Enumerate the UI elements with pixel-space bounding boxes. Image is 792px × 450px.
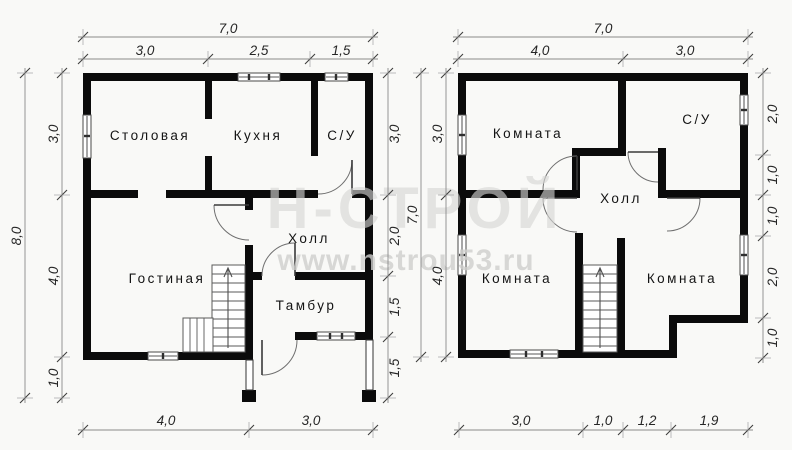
- window: [238, 73, 280, 81]
- dim-floor2-right-3: 1,0: [765, 206, 780, 225]
- room-label-living: Гостиная: [129, 271, 206, 286]
- room-label-hall-2: Холл: [600, 191, 642, 206]
- dim-floor1-left-1: 3,0: [46, 124, 61, 143]
- room-label-hall-1: Холл: [288, 231, 330, 246]
- window: [740, 95, 748, 125]
- dim-floor1-right-3: 1,5: [387, 297, 402, 316]
- room-label-room-top: Комната: [493, 126, 563, 141]
- dim-floor1-left-3: 1,0: [46, 368, 61, 387]
- window: [740, 235, 748, 275]
- window: [325, 73, 348, 81]
- room-label-dining: Столовая: [110, 128, 190, 143]
- window: [317, 332, 355, 340]
- watermark: Н-СТРОЙ www.nstrou53.ru: [267, 176, 564, 277]
- dim-floor2-right-2: 1,0: [765, 165, 780, 184]
- dim-floor2-bottom-2: 1,0: [594, 413, 613, 428]
- dim-floor2-width-total: 7,0: [594, 21, 613, 36]
- dim-floor2-right-4: 2,0: [765, 267, 780, 287]
- dim-floor2-right-5: 1,0: [765, 328, 780, 347]
- room-label-room-bottom-left: Комната: [482, 271, 552, 286]
- dim-floor1-right-1: 3,0: [387, 124, 402, 143]
- dim-floor1-bottom-1: 4,0: [157, 413, 176, 428]
- dim-floor2-top-1: 4,0: [531, 43, 550, 58]
- plans-canvas: Н-СТРОЙ www.nstrou53.ru 7,0 3,0 2,5 1,5 …: [0, 0, 792, 450]
- dim-floor1-height-total: 8,0: [9, 226, 24, 245]
- floor2-stairs: [583, 265, 617, 352]
- dim-floor2-left-1: 3,0: [430, 124, 445, 143]
- room-label-kitchen: Кухня: [234, 128, 283, 143]
- dim-floor1-top-1: 3,0: [136, 43, 155, 58]
- dim-floor2-left-2: 4,0: [430, 266, 445, 285]
- window: [83, 115, 91, 158]
- dim-floor1-right-4: 1,5: [387, 358, 402, 377]
- floor-plan-drawing: Н-СТРОЙ www.nstrou53.ru 7,0 3,0 2,5 1,5 …: [0, 0, 792, 450]
- room-label-room-bottom-right: Комната: [647, 271, 717, 286]
- dim-floor1-top-3: 1,5: [332, 43, 351, 58]
- room-label-bathroom-1: С/У: [327, 128, 357, 143]
- window: [148, 352, 178, 360]
- dim-floor2-bottom-4: 1,9: [700, 413, 719, 428]
- dim-floor2-bottom-1: 3,0: [512, 413, 531, 428]
- dim-floor2-top-2: 3,0: [676, 43, 695, 58]
- dim-floor1-width-total: 7,0: [219, 21, 238, 36]
- dim-floor1-bottom-2: 3,0: [302, 413, 321, 428]
- room-label-vestibule: Тамбур: [276, 298, 337, 313]
- room-label-bathroom-2: С/У: [682, 112, 712, 127]
- dim-floor2-right-1: 2,0: [765, 104, 780, 124]
- window: [510, 350, 558, 358]
- dim-floor2-height-total: 7,0: [405, 205, 420, 224]
- dim-floor1-top-2: 2,5: [249, 43, 269, 58]
- window: [458, 115, 466, 155]
- dim-floor1-right-2: 2,0: [387, 226, 402, 246]
- dim-floor2-bottom-3: 1,2: [638, 413, 657, 428]
- dim-floor1-left-2: 4,0: [46, 266, 61, 285]
